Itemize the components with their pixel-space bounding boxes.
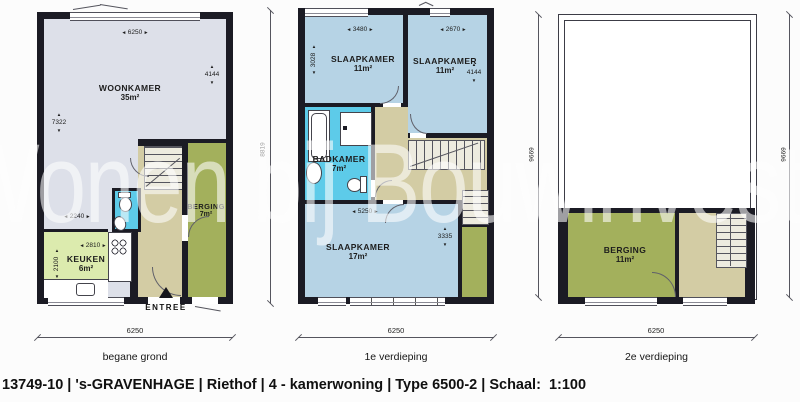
room-area: 7m² (184, 211, 228, 218)
room-name: KEUKEN (64, 254, 108, 264)
dim-height-left: 9669 (529, 137, 536, 173)
room-name: SLAAPKAMER (328, 54, 398, 64)
dim-room1-width: 3480 (335, 26, 385, 33)
attic-left-wall (558, 208, 568, 304)
sheet-caption: 13749-10 | 's-GRAVENHAGE | Riethof | 4 -… (2, 377, 586, 393)
bathtub-inner (311, 113, 327, 159)
toilet-fixture (119, 197, 132, 212)
room-name: BERGING (184, 202, 228, 211)
room-area: 17m² (318, 252, 398, 261)
stairs-upper (462, 190, 489, 225)
room-name: SLAAPKAMER (318, 242, 398, 252)
room-area: 35m² (95, 93, 165, 102)
berging-door-gap (182, 215, 188, 241)
room-label-slaapkamer-3: SLAAPKAMER 17m² (318, 242, 398, 261)
closet-strip (462, 227, 487, 297)
berging-door-leaf (195, 306, 221, 311)
dim-width-bottom: 6250 (621, 326, 691, 335)
dim-width-top: 6250 (100, 29, 170, 36)
stairs-attic (716, 213, 747, 268)
dim-hall-width: 2240 (57, 213, 97, 220)
room-area: 7m² (308, 164, 370, 173)
window (585, 297, 657, 306)
window (683, 297, 727, 306)
dim-kitchen-height: 2100 (50, 248, 64, 280)
room-label-slaapkamer-2: SLAAPKAMER 11m² (410, 56, 480, 75)
room-label-keuken: KEUKEN 6m² (64, 254, 108, 273)
kitchen-window (48, 297, 124, 306)
dimension-line (37, 337, 233, 338)
plan-title-1e-verdieping: 1e verdieping (298, 351, 494, 363)
room-area: 6m² (64, 264, 108, 273)
room-name: WOONKAMER (95, 83, 165, 93)
plan-title-2e-verdieping: 2e verdieping (558, 351, 755, 363)
window (350, 297, 445, 306)
shower-drain (343, 126, 347, 130)
dim-room1-height: 3028 (307, 44, 321, 76)
entree-arrow (159, 287, 173, 298)
dimension-line (558, 337, 755, 338)
room-name: SLAAPKAMER (410, 56, 480, 66)
dim-room2-width: 2670 (428, 26, 478, 33)
roof-mark-line (426, 2, 434, 6)
stove-burners (110, 238, 128, 256)
dimension-line (538, 14, 539, 298)
dim-room4-height: 3335 (436, 226, 454, 248)
plan-title-begane-grond: begane grond (37, 351, 233, 363)
window (305, 8, 368, 17)
room-label-berging-attic: BERGING 11m² (590, 245, 660, 264)
dim-room4-width: 5250 (340, 208, 390, 215)
dim-kitchen-width: 2810 (73, 242, 113, 249)
room-label-badkamer: BADKAMER 7m² (308, 154, 370, 173)
bedroom1-door-gap (383, 103, 401, 107)
dim-height-right: 4144 (203, 64, 221, 86)
roof-mark-line (73, 5, 101, 10)
roof-mark-line (100, 4, 128, 9)
entree-label: ENTREE (140, 303, 192, 312)
dim-width-bottom: 6250 (361, 326, 431, 335)
window (70, 12, 200, 21)
berging-outside-door (192, 297, 218, 304)
window (430, 8, 450, 17)
dim-total-height: 8819 (260, 132, 267, 168)
room-name: BADKAMER (308, 154, 370, 164)
kitchen-sink (76, 283, 95, 296)
dim-height-left: 7322 (50, 112, 68, 134)
room-area: 11m² (410, 66, 480, 75)
window (318, 297, 346, 306)
dimension-line (270, 10, 271, 304)
dimension-line (789, 14, 790, 298)
floorplan-sheet: WOONKAMER 35m² KEUKEN 6m² BERGING 7m² EN… (0, 0, 800, 402)
bedroom-divider-wall (403, 15, 408, 103)
room-area: 11m² (590, 255, 660, 264)
room-label-berging: BERGING 7m² (184, 202, 228, 218)
stairs-rail (730, 213, 731, 266)
room-label-woonkamer: WOONKAMER 35m² (95, 83, 165, 102)
toilet-tank (360, 176, 367, 193)
room-name: BERGING (590, 245, 660, 255)
dim-width-bottom: 6250 (100, 326, 170, 335)
room-area: 11m² (328, 64, 398, 73)
dimension-line (298, 337, 494, 338)
room-label-slaapkamer-1: SLAAPKAMER 11m² (328, 54, 398, 73)
dim-height-right: 9669 (781, 137, 788, 173)
